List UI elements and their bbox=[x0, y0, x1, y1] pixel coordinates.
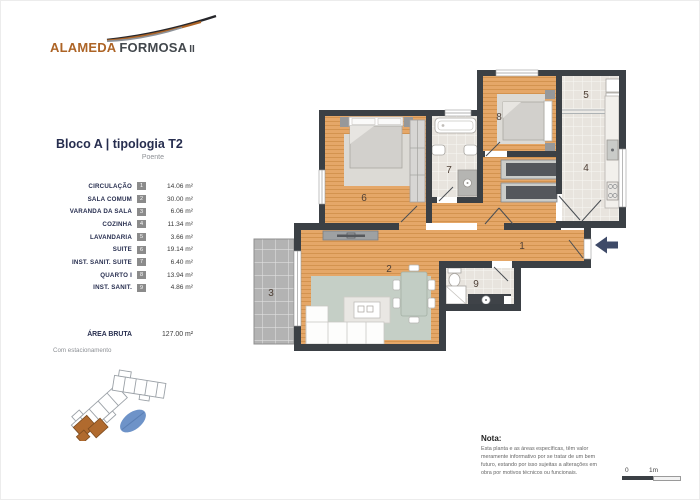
room-number-chip: 7 bbox=[137, 258, 146, 266]
room-name: SALA COMUM bbox=[53, 196, 132, 203]
gross-area-row: ÁREA BRUTA 127.00 m² bbox=[53, 331, 193, 338]
room-area: 6.40 m² bbox=[151, 259, 193, 266]
room-area: 6.06 m² bbox=[151, 208, 193, 215]
room-number-chip: 6 bbox=[137, 246, 146, 254]
room-name: SUITE bbox=[53, 246, 132, 253]
room-number-chip: 3 bbox=[137, 208, 146, 216]
scale-bar: 0 1m bbox=[622, 467, 684, 481]
room-name: INST. SANIT. bbox=[53, 284, 132, 291]
room-number-chip: 2 bbox=[137, 195, 146, 203]
scale-one-label: 1m bbox=[649, 467, 658, 474]
room-legend: CIRCULAÇÃO 1 14.06 m² SALA COMUM 2 30.00… bbox=[53, 180, 193, 294]
scale-zero-label: 0 bbox=[625, 467, 629, 474]
legend-row: LAVANDARIA 5 3.66 m² bbox=[53, 231, 193, 244]
balcony-room-3 bbox=[254, 239, 294, 344]
gross-area-value: 127.00 m² bbox=[151, 331, 193, 338]
room-number-chip: 8 bbox=[137, 271, 146, 279]
note-title: Nota: bbox=[481, 434, 651, 443]
room-area: 14.06 m² bbox=[151, 183, 193, 190]
room-number-chip: 4 bbox=[137, 220, 146, 228]
room-area: 19.14 m² bbox=[151, 246, 193, 253]
gross-area-label: ÁREA BRUTA bbox=[53, 331, 132, 338]
scale-light-segment bbox=[653, 476, 681, 481]
plan-label-7: 7 bbox=[446, 165, 452, 176]
legend-row: INST. SANIT. SUITE 7 6.40 m² bbox=[53, 256, 193, 269]
room-area: 11.34 m² bbox=[151, 221, 193, 228]
scale-labels: 0 1m bbox=[622, 467, 684, 475]
room-number-chip: 5 bbox=[137, 233, 146, 241]
brand-primary: ALAMEDA bbox=[50, 40, 116, 55]
plan-label-2: 2 bbox=[386, 264, 392, 275]
scale-dark-segment bbox=[622, 476, 653, 480]
floor-plan: 1 2 3 4 5 6 7 8 9 bbox=[249, 54, 629, 364]
plan-label-6: 6 bbox=[361, 193, 367, 204]
room-area: 3.66 m² bbox=[151, 234, 193, 241]
note-line: meramente informativo por se tratar de u… bbox=[481, 453, 651, 461]
pool bbox=[116, 405, 150, 437]
room-area: 4.86 m² bbox=[151, 284, 193, 291]
legend-row: INST. SANIT. 9 4.86 m² bbox=[53, 282, 193, 295]
room-number-chip: 1 bbox=[137, 182, 146, 190]
entrance-arrow-icon bbox=[595, 237, 618, 254]
legend-row: COZINHA 4 11.34 m² bbox=[53, 218, 193, 231]
brand-secondary: FORMOSA bbox=[119, 40, 187, 55]
parking-note: Com estacionamento bbox=[53, 347, 111, 354]
legend-row: VARANDA DA SALA 3 6.06 m² bbox=[53, 205, 193, 218]
plan-label-8: 8 bbox=[496, 112, 502, 123]
room-name: QUARTO I bbox=[53, 272, 132, 279]
brand-logo: ALAMEDAFORMOSAII bbox=[50, 39, 195, 57]
kitchen-counter bbox=[605, 96, 619, 208]
note-line: Esta planta e as áreas específicas, têm … bbox=[481, 445, 651, 453]
room-name: COZINHA bbox=[53, 221, 132, 228]
plan-label-9: 9 bbox=[473, 279, 479, 290]
legend-row: SUITE 6 19.14 m² bbox=[53, 243, 193, 256]
plan-label-3: 3 bbox=[268, 288, 274, 299]
plan-label-5: 5 bbox=[583, 90, 589, 101]
plan-label-1: 1 bbox=[519, 241, 525, 252]
legend-row: QUARTO I 8 13.94 m² bbox=[53, 269, 193, 282]
room-name: LAVANDARIA bbox=[53, 234, 132, 241]
building-locator-map bbox=[57, 359, 175, 441]
legend-row: SALA COMUM 2 30.00 m² bbox=[53, 193, 193, 206]
brochure-page: ALAMEDAFORMOSAII Bloco A | tipologia T2 … bbox=[0, 0, 700, 500]
scale-track bbox=[622, 476, 684, 481]
room-area: 30.00 m² bbox=[151, 196, 193, 203]
orientation-label: Poente bbox=[56, 154, 164, 161]
room-name: INST. SANIT. SUITE bbox=[53, 259, 132, 266]
room-name: CIRCULAÇÃO bbox=[53, 183, 132, 190]
legend-row: CIRCULAÇÃO 1 14.06 m² bbox=[53, 180, 193, 193]
logo-swoosh-icon bbox=[104, 14, 219, 42]
brand-suffix: II bbox=[189, 44, 195, 55]
page-title: Bloco A | tipologia T2 bbox=[56, 137, 183, 151]
room-name: VARANDA DA SALA bbox=[53, 208, 132, 215]
room-number-chip: 9 bbox=[137, 284, 146, 292]
room-area: 13.94 m² bbox=[151, 272, 193, 279]
plan-label-4: 4 bbox=[583, 163, 589, 174]
